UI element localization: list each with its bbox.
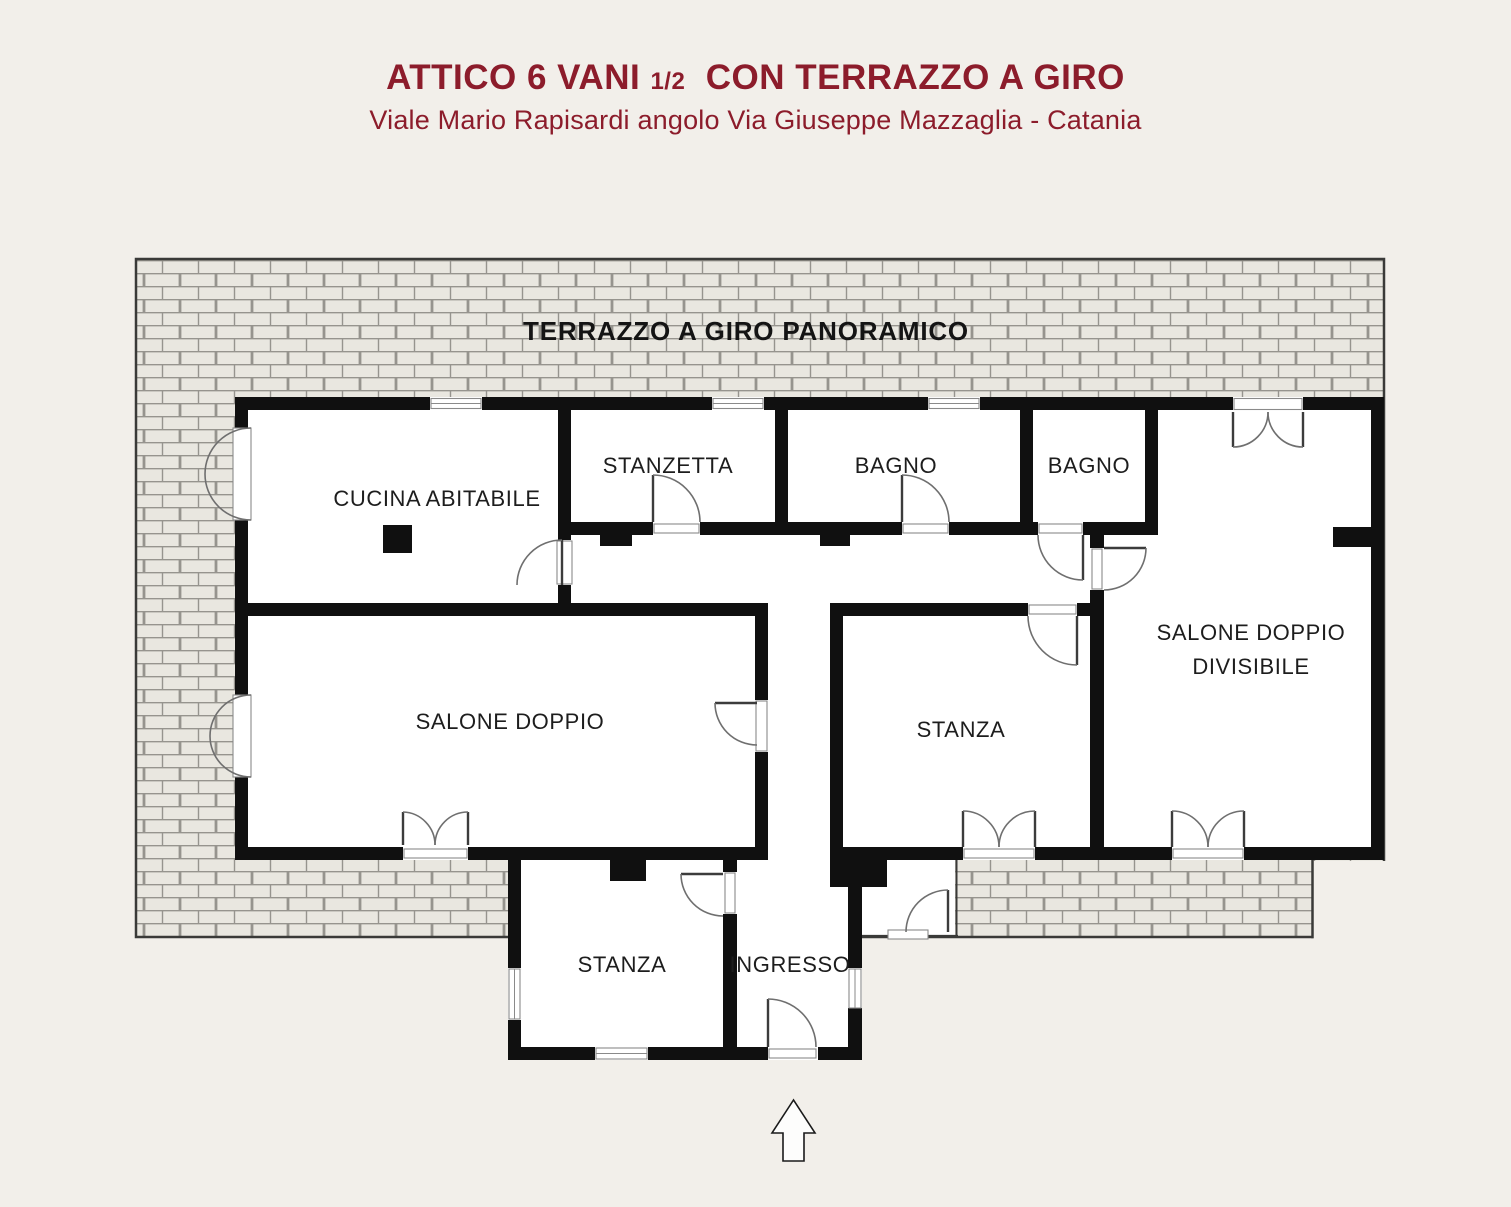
kitchen-column — [383, 525, 412, 553]
room-label-stanzetta: STANZETTA — [603, 453, 733, 478]
page: ATTICO 6 VANI 1/2 CON TERRAZZO A GIRO Vi… — [0, 0, 1511, 1207]
terrace-cutout — [1314, 861, 1388, 940]
room-label-cucina: CUCINA ABITABILE — [333, 486, 540, 511]
room-label-stanza-bottom: STANZA — [578, 952, 667, 977]
room-label-ingresso: INGRESSO — [730, 952, 851, 977]
right-wall-stub — [1333, 527, 1371, 547]
room-label-bagno-1: BAGNO — [855, 453, 937, 478]
room-label-bagno-2: BAGNO — [1048, 453, 1130, 478]
room-label-divisibile-line2: DIVISIBILE — [1192, 654, 1309, 679]
room-label-divisibile-line1: SALONE DOPPIO — [1157, 620, 1346, 645]
nook-step — [862, 860, 887, 887]
room-label-salone: SALONE DOPPIO — [416, 709, 605, 734]
entry-direction-arrow-icon — [772, 1100, 815, 1161]
terrace-label: TERRAZZO A GIRO PANORAMICO — [523, 316, 969, 346]
floor-plan: TERRAZZO A GIRO PANORAMICO — [0, 0, 1511, 1207]
room-label-stanza-right: STANZA — [917, 717, 1006, 742]
